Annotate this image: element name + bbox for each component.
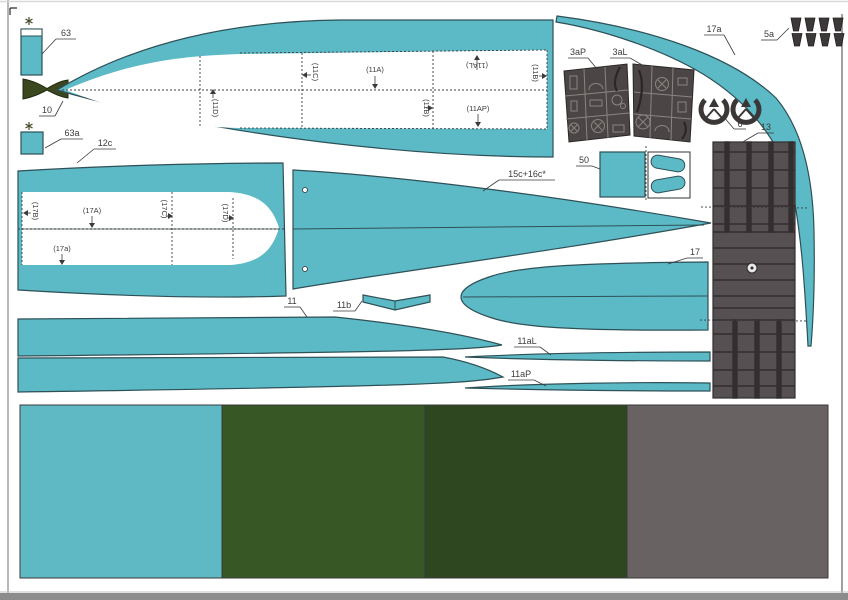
strip-11aP: [465, 383, 710, 391]
registration-mark-icon: [26, 17, 33, 25]
swatch-dark-green: [425, 405, 627, 578]
label-17a-dim: (17a): [53, 244, 71, 253]
label-17: 17: [690, 247, 700, 257]
punch-hole: [303, 267, 308, 272]
label-17a: 17a: [706, 24, 721, 34]
scan-bottom-edge: [0, 593, 848, 600]
label-15c-16c: 15c+16c*: [508, 169, 546, 179]
instrument-panel-3aP: 3aP: [564, 47, 630, 142]
color-swatches: [20, 405, 828, 578]
paper-model-sheet: 63 10 63a (11D) (11C) (11A) (: [0, 0, 848, 600]
part-13-column: 13: [700, 122, 807, 398]
label-17A: (17A): [83, 206, 102, 215]
label-17D: (17D): [221, 204, 230, 223]
label-11B-right: (11B): [531, 64, 540, 82]
label-50: 50: [579, 155, 589, 165]
label-17B: (17B): [31, 202, 40, 221]
registration-mark-icon: [26, 122, 33, 130]
label-63: 63: [61, 28, 71, 38]
strip-11b: [363, 295, 430, 310]
label-11: 11: [287, 296, 296, 306]
label-11A: (11A): [366, 65, 384, 74]
label-13: 13: [761, 122, 771, 132]
part-50: 50: [576, 146, 690, 202]
label-11D: (11D): [211, 99, 220, 118]
corner-mark: [10, 8, 17, 15]
swatch-gray: [627, 405, 828, 578]
punch-hole: [303, 188, 308, 193]
part-5a-cups: 5a: [761, 18, 844, 46]
label-5a: 5a: [764, 29, 774, 39]
part-17: 17: [461, 247, 708, 330]
label-11AP: (11AP): [467, 104, 490, 113]
part-12c: 12c (17B) (17A) (17C) (17D) (17a): [18, 138, 286, 297]
label-11C: (11C): [311, 63, 320, 82]
strip-11-lower: [18, 357, 503, 392]
part-63: 63: [21, 17, 76, 75]
label-63a: 63a: [64, 128, 79, 138]
label-12c: 12c: [98, 138, 113, 148]
swatch-teal: [20, 405, 222, 578]
label-3aP: 3aP: [570, 47, 586, 57]
label-3aL: 3aL: [612, 47, 627, 57]
strip-11aL: [465, 352, 710, 361]
yoke-icon: [701, 98, 727, 122]
part-63a: 63a: [21, 122, 83, 154]
part-10: 10: [23, 79, 68, 116]
label-11aP: 11aP: [511, 369, 531, 379]
label-6: 6: [737, 119, 742, 129]
label-10: 10: [42, 105, 52, 115]
label-11b: 11b: [337, 300, 351, 310]
part-fuselage-top: (11D) (11C) (11A) (11AL) (11B) (11B) (11…: [57, 20, 553, 157]
swatch-olive-green: [222, 405, 425, 578]
label-11aL: 11aL: [517, 336, 536, 346]
strip-11-upper: [18, 317, 502, 356]
